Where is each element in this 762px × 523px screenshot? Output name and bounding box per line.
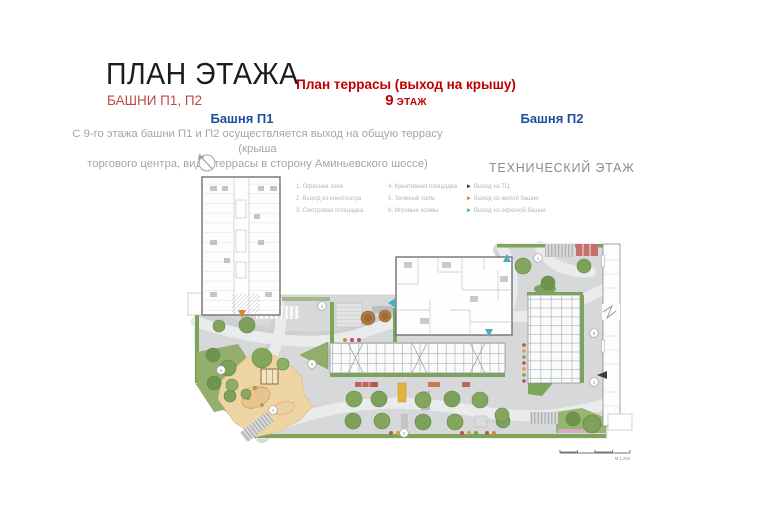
floor-number: 9 (385, 92, 393, 109)
tower-p1-label: Башня П1 (177, 111, 307, 126)
svg-text:6: 6 (311, 362, 314, 367)
svg-text:6: 6 (593, 331, 596, 336)
tower-p2-label: Башня П2 (487, 111, 617, 126)
plan-marker: 4 (269, 406, 278, 415)
floor-word: ЭТАЖ (394, 97, 427, 108)
plan-marker: 3 (400, 429, 409, 438)
scale-bar: М 1:200 (560, 450, 631, 461)
plan-marker: 6 (308, 360, 317, 369)
svg-text:1: 1 (537, 256, 540, 261)
pergola-right (528, 295, 580, 383)
plan-marker: 2 (318, 302, 327, 311)
page-title: ПЛАН ЭТАЖА (106, 56, 315, 92)
svg-text:3: 3 (593, 380, 596, 385)
page-subtitle: БАШНИ П1, П2 (107, 93, 202, 108)
terrace-heading: План террасы (выход на крышу) (290, 77, 522, 92)
plan-marker: 5 (217, 366, 226, 375)
plan-marker: 6 (590, 329, 599, 338)
svg-text:4: 4 (272, 408, 275, 413)
plan-marker: 1 (534, 254, 543, 263)
svg-text:3: 3 (403, 431, 406, 436)
scale-label: М 1:200 (615, 456, 631, 461)
tower-p1-plan (188, 177, 280, 315)
plan-marker: 3 (590, 378, 599, 387)
floor-label: 9 ЭТАЖ (290, 92, 522, 110)
north-arrow-icon (198, 154, 215, 171)
svg-text:2: 2 (321, 304, 324, 309)
right-building-strip (602, 244, 633, 430)
middle-building-plan (396, 257, 512, 335)
floor-plan: 1 2 6 3 3 6 4 5 М 1:200 (185, 148, 677, 480)
pergola-long (330, 343, 505, 373)
svg-text:5: 5 (220, 368, 223, 373)
